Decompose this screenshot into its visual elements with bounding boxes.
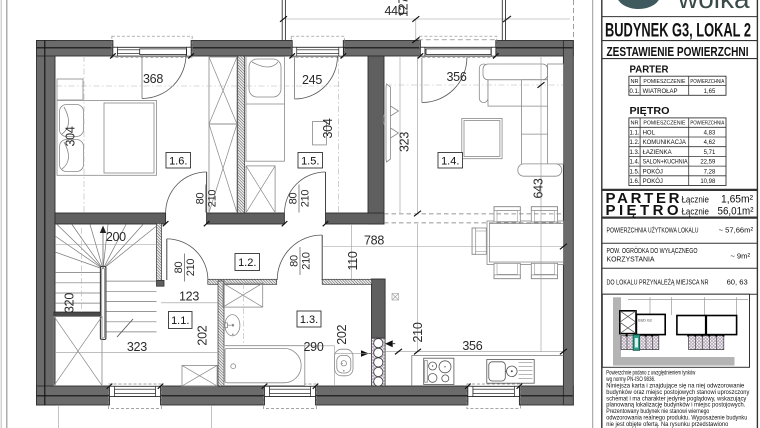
svg-text:POW. OGRÓDKA DO WYŁĄCZNEGO: POW. OGRÓDKA DO WYŁĄCZNEGO — [607, 246, 698, 255]
svg-text:Łącznie: Łącznie — [682, 207, 710, 218]
svg-text:356: 356 — [462, 339, 482, 353]
svg-text:KOMUNIKACJA: KOMUNIKACJA — [643, 140, 686, 146]
svg-text:HOL: HOL — [643, 131, 656, 137]
svg-text:POKÓJ: POKÓJ — [643, 168, 663, 175]
svg-text:SALON+KUCHNIA: SALON+KUCHNIA — [643, 160, 688, 166]
svg-text:788: 788 — [364, 234, 384, 248]
svg-text:ZESTAWIENIE POWIERZCHNI: ZESTAWIENIE POWIERZCHNI — [607, 44, 749, 59]
svg-text:POMIESZCZENIE: POMIESZCZENIE — [643, 121, 685, 127]
svg-text:290: 290 — [304, 340, 324, 354]
svg-text:DO LOKALU PRZYNALEŻĄ MIEJSCA N: DO LOKALU PRZYNALEŻĄ MIEJSCA NR — [607, 278, 709, 287]
svg-text:80: 80 — [194, 193, 206, 205]
svg-text:210: 210 — [301, 252, 313, 270]
svg-text:80: 80 — [289, 255, 301, 267]
svg-text:7,28: 7,28 — [704, 169, 716, 175]
svg-text:1,65: 1,65 — [704, 89, 716, 95]
svg-text:1.4.: 1.4. — [629, 160, 639, 166]
svg-text:1.5.: 1.5. — [301, 155, 319, 167]
svg-text:368: 368 — [143, 72, 163, 86]
svg-text:356: 356 — [447, 70, 467, 84]
svg-text:304: 304 — [321, 118, 335, 138]
svg-text:~ 57,66m²: ~ 57,66m² — [719, 225, 754, 234]
svg-text:123: 123 — [179, 290, 199, 304]
svg-text:WIATROŁAP: WIATROŁAP — [643, 89, 678, 95]
svg-text:5,71: 5,71 — [704, 150, 716, 156]
svg-text:80: 80 — [173, 262, 185, 274]
svg-text:~ 9m²: ~ 9m² — [730, 252, 750, 261]
svg-text:BUD G3: BUD G3 — [638, 318, 651, 322]
svg-text:202: 202 — [335, 324, 349, 344]
svg-text:1,65m²: 1,65m² — [721, 194, 753, 206]
svg-text:POKÓJ: POKÓJ — [643, 178, 663, 185]
svg-text:1.6.: 1.6. — [629, 179, 639, 185]
svg-text:1.1.: 1.1. — [171, 315, 189, 327]
svg-text:wólka: wólka — [677, 0, 750, 14]
svg-text:4,62: 4,62 — [704, 140, 716, 146]
svg-text:210: 210 — [206, 190, 218, 208]
svg-text:NR: NR — [630, 79, 638, 85]
svg-text:1.6.: 1.6. — [169, 155, 187, 167]
svg-text:60, 63: 60, 63 — [727, 278, 748, 287]
svg-text:POWIERZCHNIA UŻYTKOWA LOKALU: POWIERZCHNIA UŻYTKOWA LOKALU — [607, 225, 699, 234]
svg-text:1.3.: 1.3. — [300, 314, 318, 326]
svg-text:KORZYSTANIA: KORZYSTANIA — [607, 255, 656, 264]
svg-text:304: 304 — [64, 126, 78, 146]
svg-text:NR: NR — [630, 121, 638, 127]
svg-text:POWIERZCHNIA: POWIERZCHNIA — [690, 79, 724, 85]
svg-text:56,01m²: 56,01m² — [718, 206, 754, 218]
svg-text:200: 200 — [106, 230, 126, 244]
svg-text:210: 210 — [300, 190, 312, 208]
svg-text:0.1.: 0.1. — [629, 89, 639, 95]
svg-text:22,59: 22,59 — [700, 160, 716, 166]
svg-text:1.2.: 1.2. — [238, 257, 256, 269]
svg-text:Łącznie: Łącznie — [682, 195, 710, 206]
svg-text:BUDYNEK G3, LOKAL 2: BUDYNEK G3, LOKAL 2 — [605, 20, 751, 42]
svg-text:ŁAZIENKA: ŁAZIENKA — [643, 150, 672, 156]
svg-text:POMIESZCZENIE: POMIESZCZENIE — [643, 79, 685, 85]
svg-text:1.4.: 1.4. — [441, 155, 459, 167]
svg-text:10,98: 10,98 — [700, 179, 716, 185]
svg-text:1.5.: 1.5. — [629, 169, 639, 175]
svg-text:POWIERZCHNIA: POWIERZCHNIA — [690, 121, 724, 127]
svg-text:1.2.: 1.2. — [629, 140, 639, 146]
svg-text:4,83: 4,83 — [704, 131, 716, 137]
svg-text:202: 202 — [196, 325, 210, 345]
svg-text:245: 245 — [302, 73, 322, 87]
svg-text:PARTER: PARTER — [630, 64, 669, 76]
svg-text:210: 210 — [411, 322, 425, 342]
svg-text:643: 643 — [532, 178, 546, 198]
svg-text:127: 127 — [397, 0, 411, 17]
svg-text:320: 320 — [63, 293, 77, 313]
svg-text:210: 210 — [185, 259, 197, 277]
svg-text:323: 323 — [127, 340, 147, 354]
svg-text:1.3.: 1.3. — [629, 150, 639, 156]
svg-text:PIĘTRO: PIĘTRO — [630, 105, 670, 117]
svg-text:323: 323 — [398, 132, 412, 152]
svg-text:1.1.: 1.1. — [629, 131, 639, 137]
svg-text:80: 80 — [288, 193, 300, 205]
svg-text:110: 110 — [346, 251, 360, 270]
